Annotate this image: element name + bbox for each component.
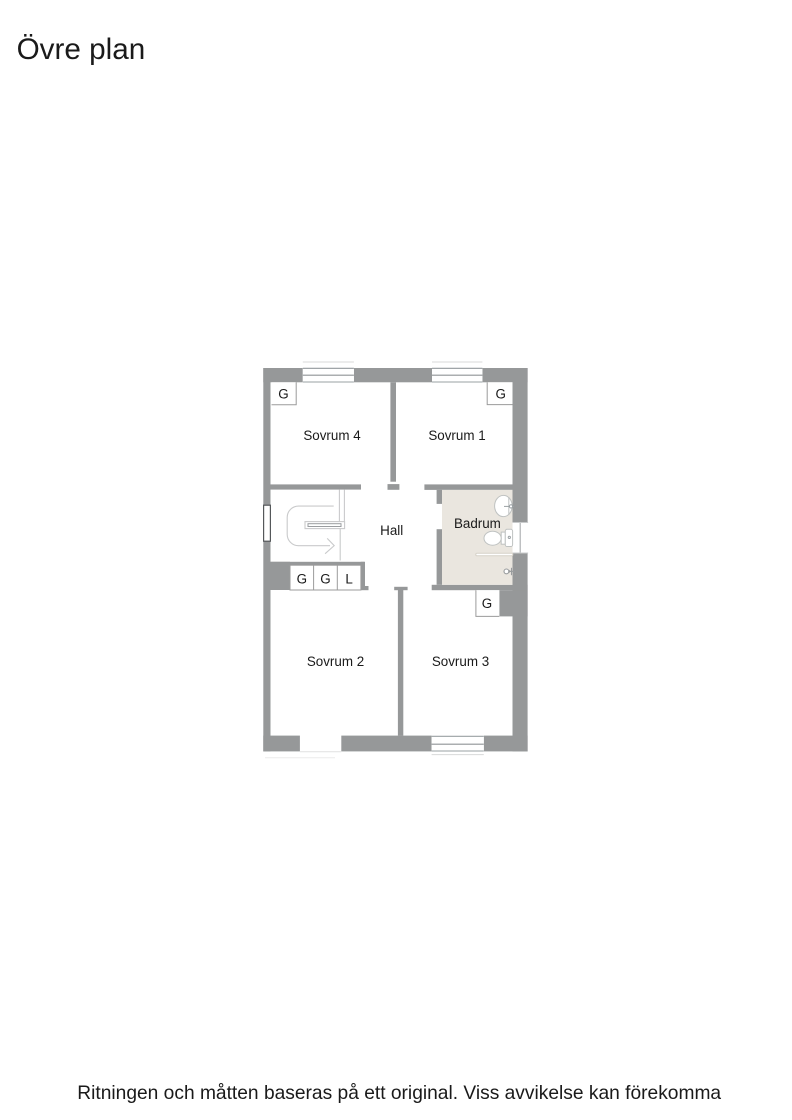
svg-text:G: G	[495, 387, 505, 402]
svg-text:L: L	[345, 571, 352, 586]
svg-text:Sovrum 4: Sovrum 4	[303, 428, 361, 443]
svg-text:Hall: Hall	[380, 523, 403, 538]
svg-text:Ritningen och måtten baseras p: Ritningen och måtten baseras på ett orig…	[77, 1083, 721, 1104]
svg-text:G: G	[278, 386, 288, 401]
svg-text:G: G	[297, 571, 307, 586]
svg-text:Övre plan: Övre plan	[17, 33, 146, 66]
svg-text:Sovrum 3: Sovrum 3	[432, 654, 489, 669]
svg-text:Sovrum 2: Sovrum 2	[307, 654, 364, 669]
svg-text:G: G	[320, 571, 330, 586]
svg-text:Badrum: Badrum	[454, 516, 501, 531]
svg-text:G: G	[482, 596, 492, 611]
svg-text:Sovrum 1: Sovrum 1	[428, 428, 485, 443]
